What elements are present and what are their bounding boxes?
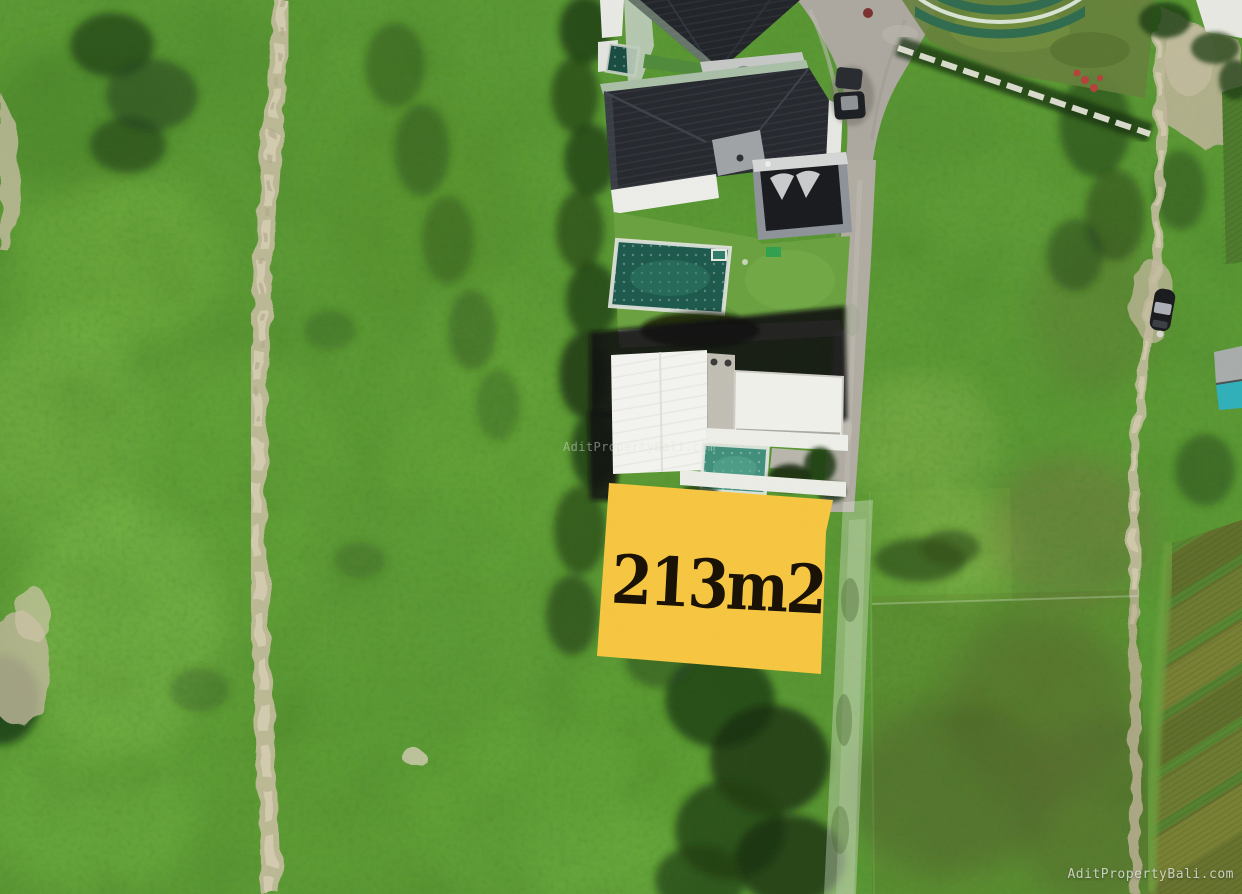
aerial-photo: 213m2 AditPropertyBali.com AditPropertyB… — [0, 0, 1242, 894]
aerial-photo-canvas — [0, 0, 1242, 894]
photo-grain — [0, 0, 1242, 894]
